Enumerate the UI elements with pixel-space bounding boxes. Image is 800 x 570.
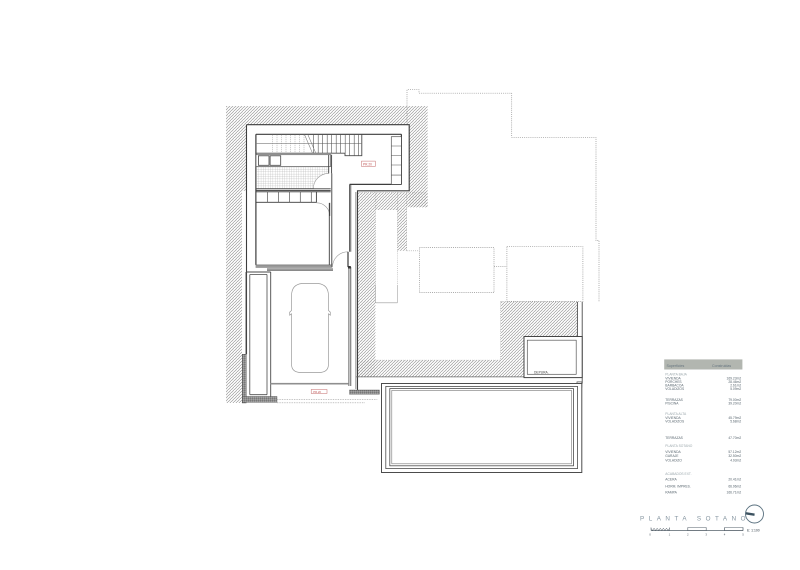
svg-text:PISCINA: PISCINA [665, 402, 679, 406]
svg-text:5.68m2: 5.68m2 [730, 420, 741, 424]
svg-text:VOLADIZO: VOLADIZO [665, 458, 682, 462]
svg-text:E: 1:100: E: 1:100 [747, 529, 760, 533]
svg-text:VOLADIZOS: VOLADIZOS [665, 387, 685, 391]
svg-text:39.20m2: 39.20m2 [728, 402, 741, 406]
svg-text:PR.20: PR.20 [313, 390, 321, 394]
svg-text:PLANTA BAJA: PLANTA BAJA [665, 373, 687, 377]
svg-text:4.93m2: 4.93m2 [730, 458, 741, 462]
svg-text:HORM. IMPRES.: HORM. IMPRES. [665, 484, 691, 488]
svg-text:VIVIENDA: VIVIENDA [665, 450, 681, 454]
svg-text:66.96m2: 66.96m2 [728, 484, 741, 488]
svg-text:GARAJE: GARAJE [665, 454, 679, 458]
svg-text:32.50m2: 32.50m2 [728, 454, 741, 458]
svg-text:Superficies: Superficies [667, 364, 685, 368]
svg-text:57.12m2: 57.12m2 [728, 450, 741, 454]
svg-text:VOLADIZOS: VOLADIZOS [665, 420, 685, 424]
svg-text:PLANTA SOTANO: PLANTA SOTANO [665, 444, 692, 448]
svg-text:RAMPA: RAMPA [665, 490, 677, 494]
svg-text:TERRAZAS: TERRAZAS [665, 436, 683, 440]
svg-text:5.09m2: 5.09m2 [730, 387, 741, 391]
svg-text:PR.20: PR.20 [363, 162, 372, 166]
svg-text:166.71m2: 166.71m2 [727, 490, 742, 494]
svg-text:20.41m2: 20.41m2 [728, 478, 741, 482]
svg-text:ACABADOS EXT.: ACABADOS EXT. [665, 472, 691, 476]
svg-text:Construidas: Construidas [712, 364, 731, 368]
svg-text:ACERA: ACERA [665, 478, 677, 482]
svg-text:47.70m2: 47.70m2 [728, 436, 741, 440]
svg-text:DEPURA.: DEPURA. [534, 370, 549, 374]
svg-text:PLANTA SOTANO: PLANTA SOTANO [640, 516, 750, 523]
